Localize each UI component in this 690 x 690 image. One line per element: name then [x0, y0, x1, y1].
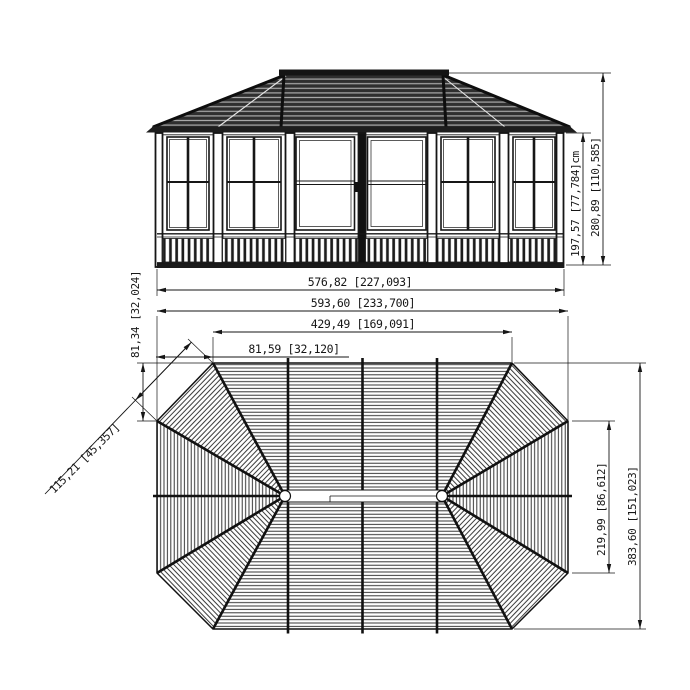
eave-fascia	[152, 127, 571, 133]
post	[428, 133, 437, 267]
door-handle	[354, 182, 359, 192]
dim-corner-diagonal-label: 115,21 [45,357]	[47, 421, 122, 496]
balusters	[366, 239, 428, 263]
dim-wall-height-label: 197,57 [77,784]cm	[569, 150, 582, 257]
dim-ridge-width-label: 429,49 [169,091]	[311, 317, 415, 331]
dim-total-height-label: 280,89 [110,585]	[589, 137, 602, 237]
dim-overall-height-label: 383,60 [151,023]	[626, 466, 639, 566]
dim-corner-width-label: 81,59 [32,120]	[248, 342, 339, 356]
eave-tip-left	[146, 127, 153, 133]
post-door-center	[359, 133, 366, 267]
post	[500, 133, 509, 267]
wall-structure	[156, 133, 565, 268]
hip-hub-right	[437, 491, 448, 502]
dim-elevation-width: 576,82 [227,093]	[157, 269, 564, 296]
eave-tip-right	[570, 127, 577, 133]
roof-plan-view: 593,60 [233,700] 429,49 [169,091] 81,59 …	[45, 271, 646, 634]
balusters	[509, 239, 557, 263]
post	[286, 133, 295, 267]
dim-overall-width-label: 593,60 [233,700]	[311, 296, 415, 310]
ridge-cap	[279, 70, 449, 76]
balusters	[223, 239, 286, 263]
front-elevation-view: 197,57 [77,784]cm 280,89 [110,585] 576,8…	[146, 70, 611, 297]
wall-posts	[156, 133, 564, 267]
dim-side-length: 219,99 [86,612]	[572, 421, 615, 573]
dim-side-length-label: 219,99 [86,612]	[595, 463, 608, 556]
post	[214, 133, 223, 267]
hip-roof	[146, 70, 577, 133]
base-rail	[157, 264, 564, 269]
dim-elevation-width-label: 576,82 [227,093]	[308, 275, 412, 289]
ridge-assembly	[280, 490, 448, 502]
post-left-edge	[156, 133, 163, 267]
balusters	[437, 239, 500, 263]
hip-hub-left	[280, 491, 291, 502]
balusters	[163, 239, 214, 263]
gazebo-technical-drawing: 197,57 [77,784]cm 280,89 [110,585] 576,8…	[0, 0, 690, 690]
post-right-edge	[557, 133, 564, 267]
technical-drawing-canvas: 197,57 [77,784]cm 280,89 [110,585] 576,8…	[0, 0, 690, 690]
dim-corner-height-label: 81,34 [32,024]	[129, 271, 142, 358]
balusters	[295, 239, 359, 263]
